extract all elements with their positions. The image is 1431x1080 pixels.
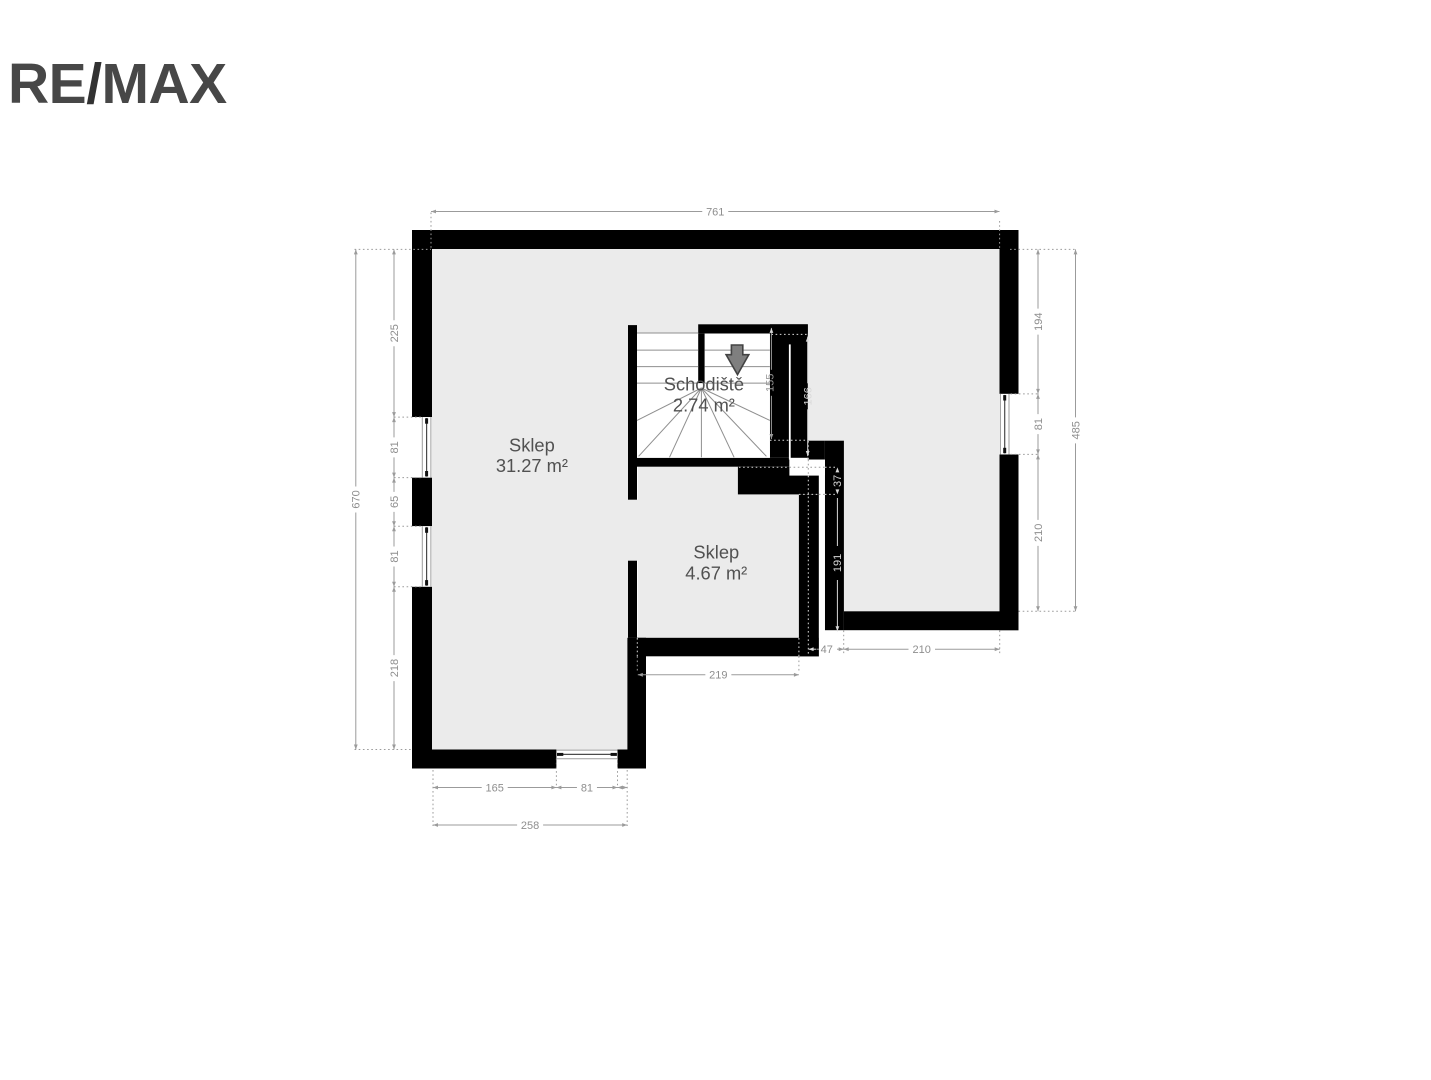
svg-text:761: 761	[706, 206, 724, 218]
svg-text:81: 81	[389, 441, 401, 453]
svg-text:210: 210	[1033, 524, 1045, 542]
svg-text:Sklep: Sklep	[509, 435, 555, 456]
svg-text:485: 485	[1070, 421, 1082, 439]
svg-text:210: 210	[913, 644, 931, 656]
svg-text:Schodiště: Schodiště	[664, 374, 744, 395]
svg-text:219: 219	[709, 670, 727, 682]
svg-text:218: 218	[389, 659, 401, 677]
svg-text:65: 65	[389, 496, 401, 508]
svg-text:81: 81	[581, 782, 593, 794]
svg-text:225: 225	[389, 324, 401, 342]
svg-text:194: 194	[1033, 312, 1045, 330]
svg-text:RE/MAX: RE/MAX	[8, 52, 227, 116]
svg-text:37: 37	[832, 475, 844, 487]
svg-text:31.27 m²: 31.27 m²	[496, 455, 568, 476]
svg-text:165: 165	[486, 782, 504, 794]
svg-text:670: 670	[351, 490, 363, 508]
svg-text:81: 81	[389, 550, 401, 562]
svg-text:Sklep: Sklep	[693, 542, 739, 563]
svg-text:258: 258	[521, 820, 539, 832]
svg-text:81: 81	[1033, 418, 1045, 430]
svg-text:4.67 m²: 4.67 m²	[685, 562, 747, 583]
svg-text:191: 191	[832, 554, 844, 572]
svg-text:47: 47	[821, 644, 833, 656]
svg-text:166: 166	[803, 387, 815, 405]
svg-text:155: 155	[764, 374, 776, 392]
svg-text:2.74 m²: 2.74 m²	[673, 395, 735, 416]
